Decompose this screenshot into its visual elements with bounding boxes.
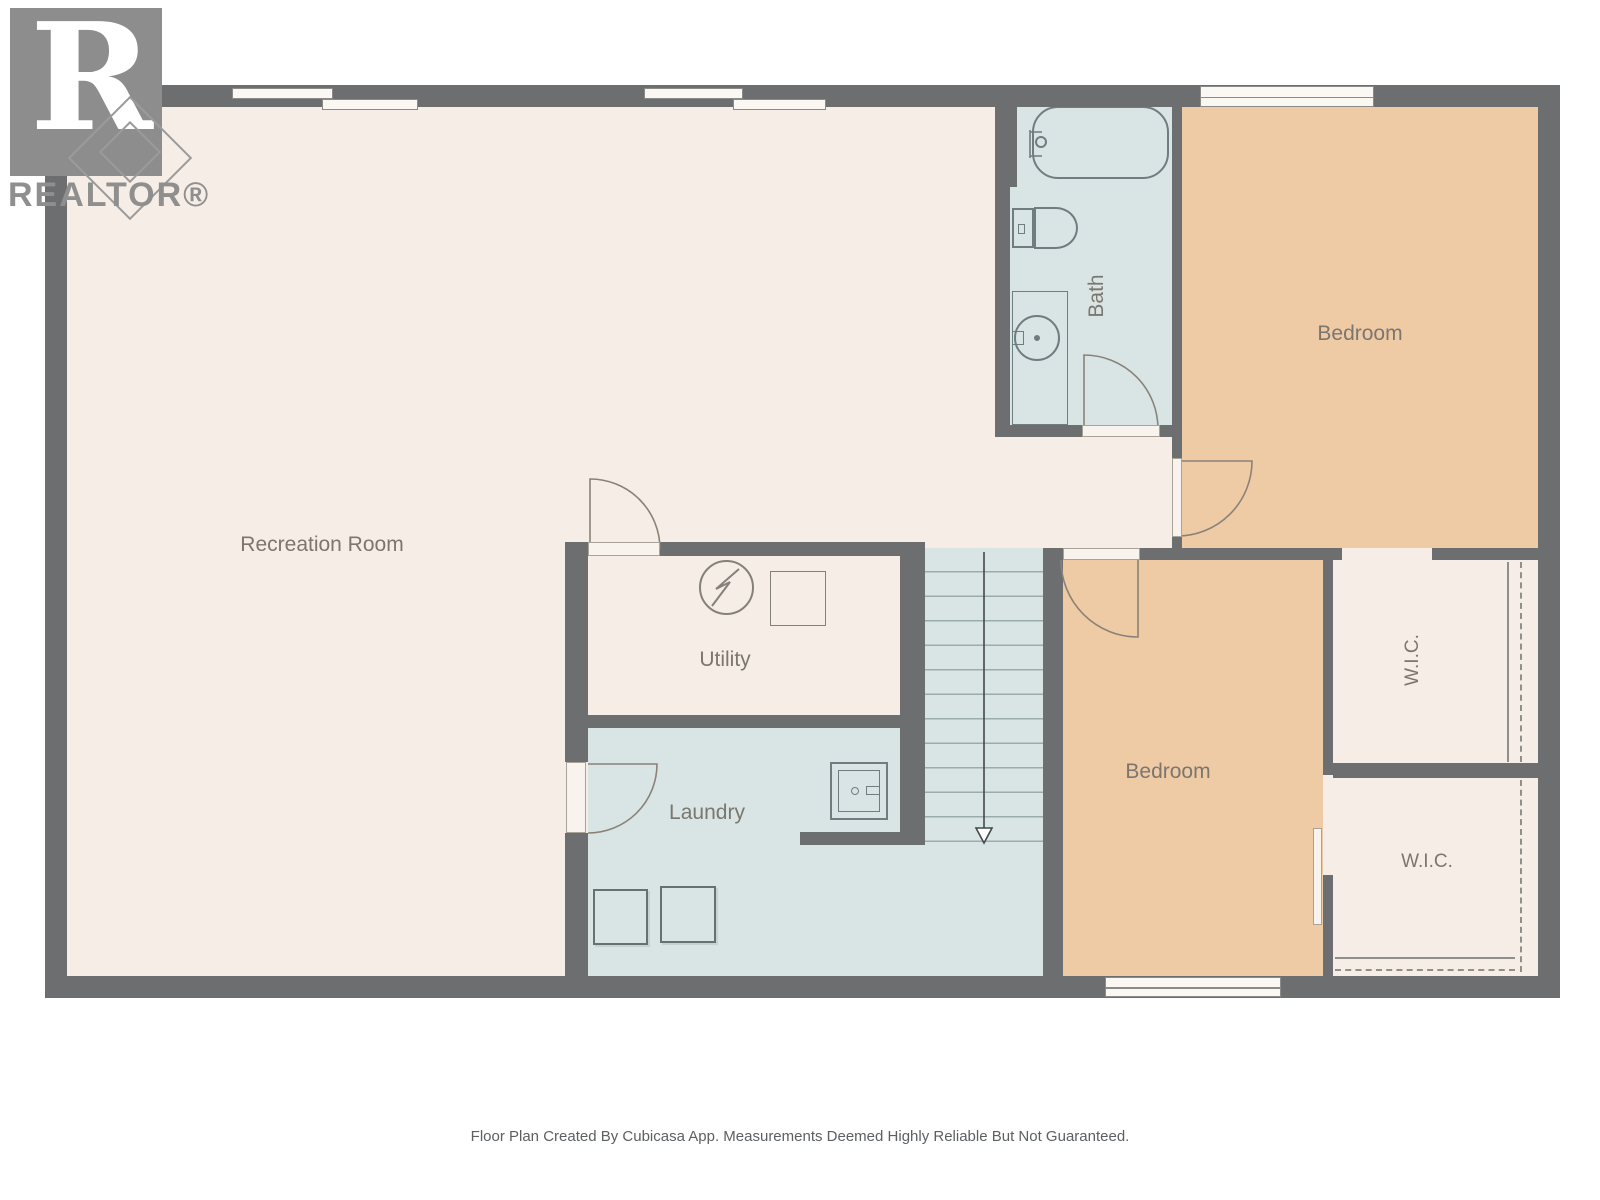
bedroom-bottom-door-swing-arc — [1061, 560, 1138, 637]
window-sliding — [322, 99, 418, 110]
footer-disclaimer: Floor Plan Created By Cubicasa App. Meas… — [0, 1128, 1600, 1145]
window-sliding — [733, 99, 826, 110]
bedroom-bottom-door-leaf — [1063, 548, 1140, 560]
window-bedroom-bottom — [1105, 977, 1281, 997]
room-label-bedroom-bottom: Bedroom — [1125, 760, 1210, 784]
realtor-logo: R REALTOR® — [8, 4, 218, 224]
bath-door-leaf — [1082, 425, 1160, 437]
bedroom-top-door-swing-arc — [1177, 461, 1252, 536]
plan-line-overlay — [0, 0, 1600, 1200]
window-sliding — [232, 88, 333, 99]
utility-door-swing-arc — [590, 479, 660, 549]
room-label-wic-bottom: W.I.C. — [1401, 851, 1453, 873]
room-label-bedroom-top: Bedroom — [1317, 322, 1402, 346]
room-label-laundry: Laundry — [669, 801, 745, 825]
electric-meter-needle — [712, 569, 739, 606]
tub-faucet-line — [1030, 130, 1042, 158]
wic-sliding-door-leaf — [1313, 828, 1322, 925]
bedroom-top-door-leaf — [1172, 458, 1182, 537]
stairs-down-arrow-icon — [976, 828, 992, 843]
room-label-wic-top: W.I.C. — [1402, 634, 1424, 686]
bath-door-swing-arc — [1084, 355, 1158, 429]
room-label-bath: Bath — [1085, 274, 1109, 317]
room-label-utility: Utility — [699, 648, 750, 672]
window-bedroom-top — [1200, 86, 1374, 107]
window-sliding — [644, 88, 743, 99]
utility-door-leaf — [588, 542, 660, 556]
room-label-recreation: Recreation Room — [240, 533, 403, 557]
laundry-door-swing-arc — [588, 764, 657, 833]
laundry-door-leaf — [566, 762, 586, 833]
floor-plan-page: Recreation Room Bath Bedroom Utility Lau… — [0, 0, 1600, 1200]
realtor-logo-text: REALTOR® — [8, 176, 210, 215]
